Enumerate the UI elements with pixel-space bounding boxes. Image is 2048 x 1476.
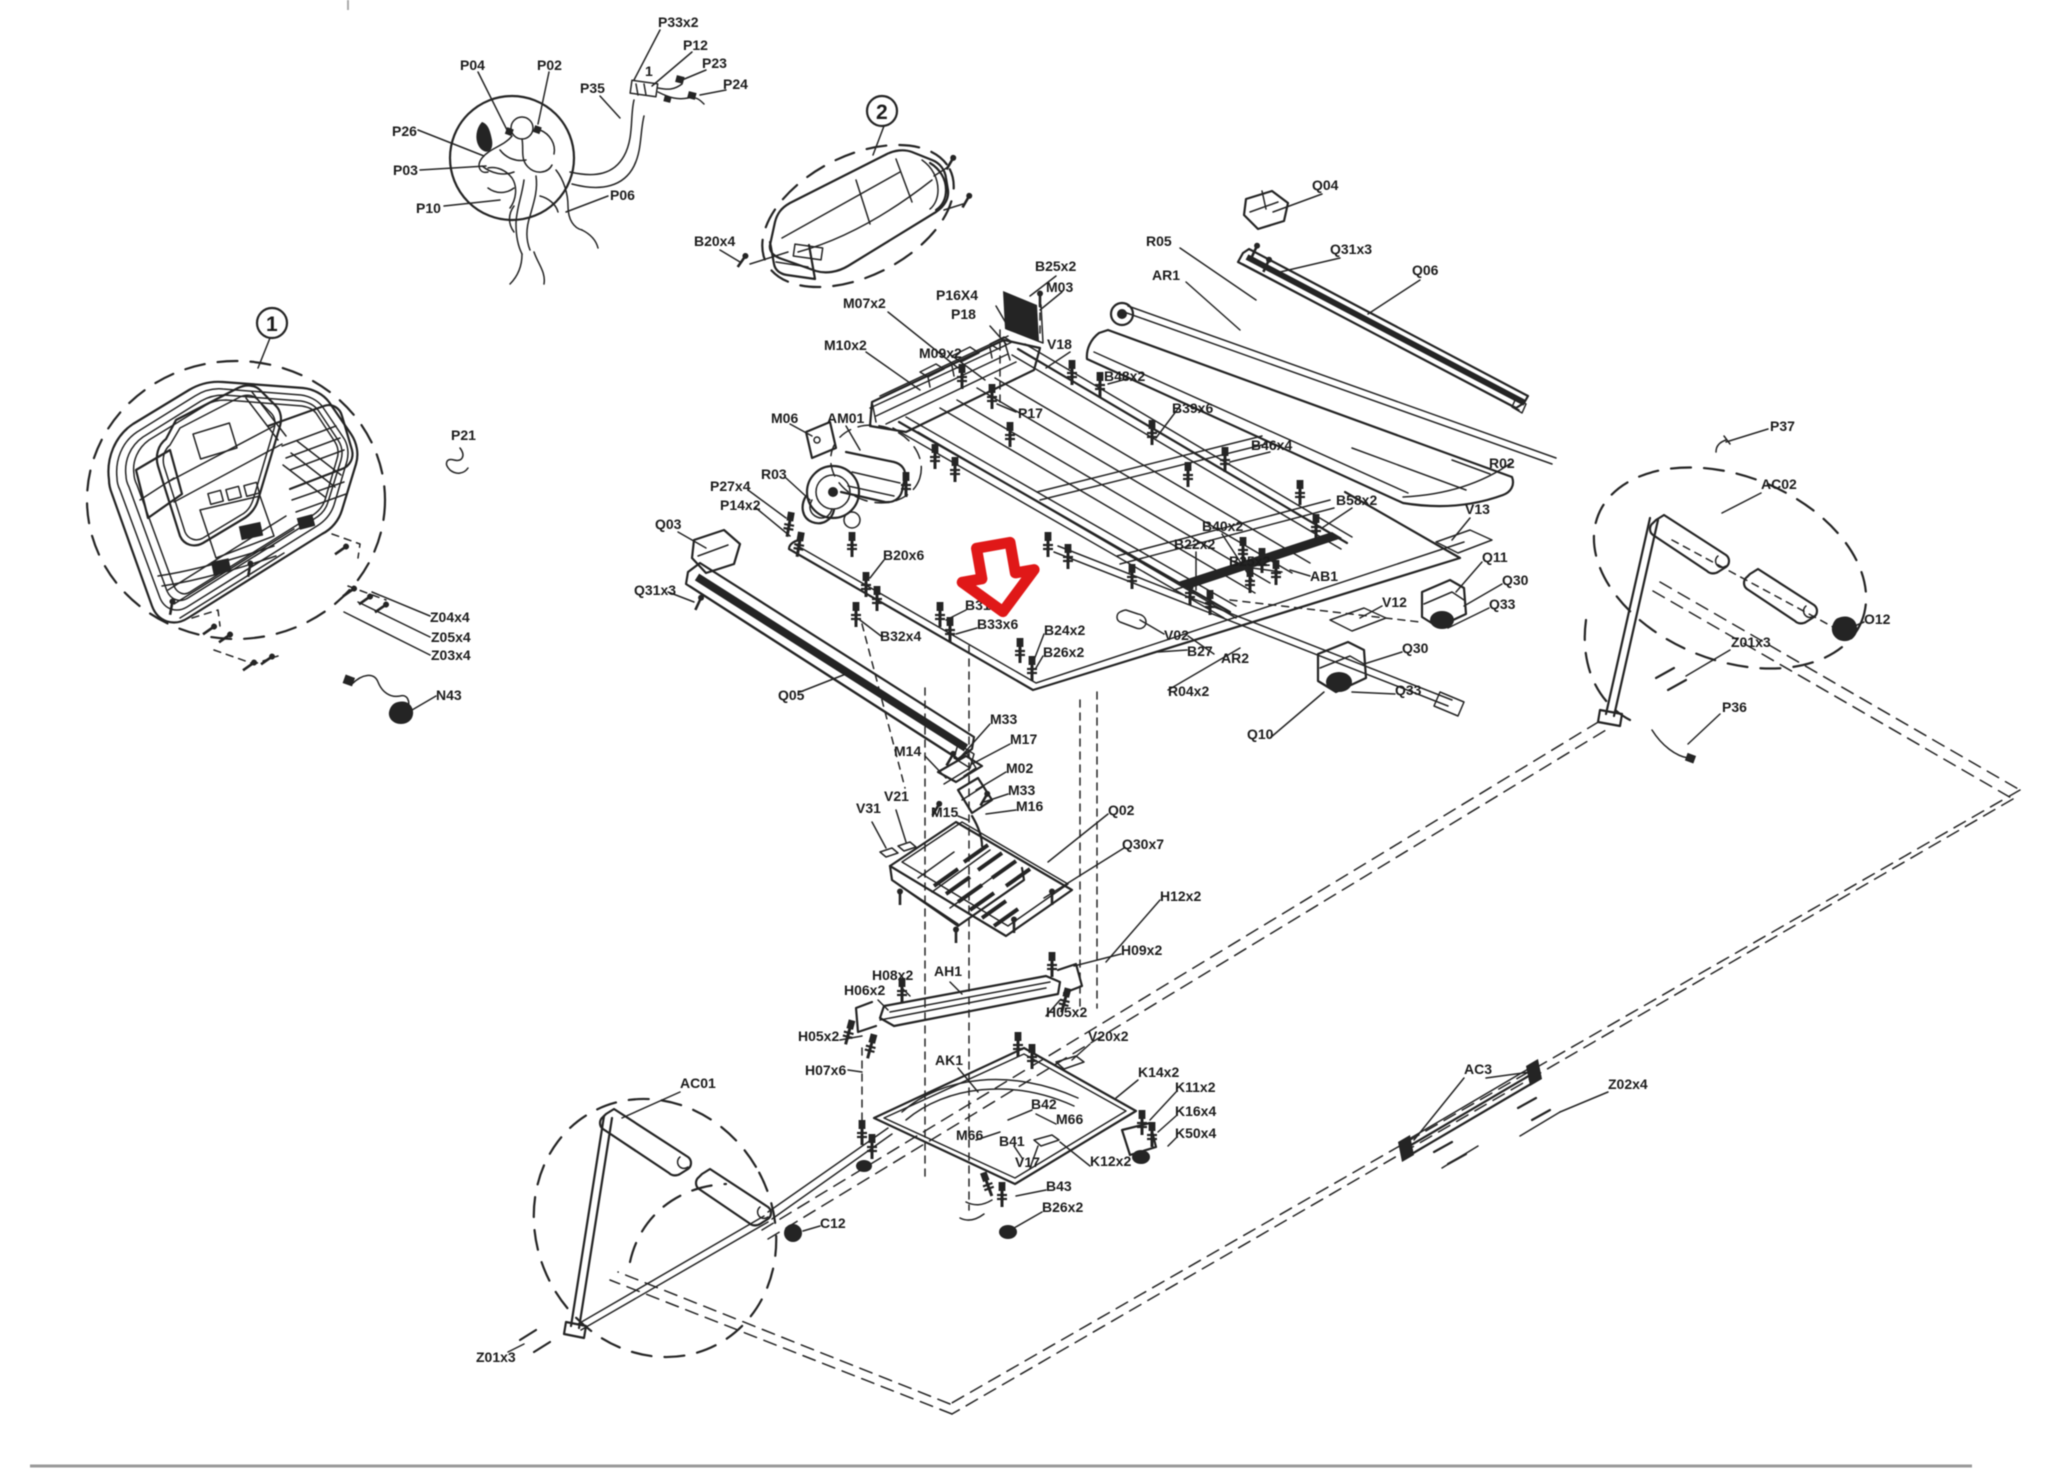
svg-text:Q05: Q05 [778,687,805,703]
svg-text:V13: V13 [1465,501,1490,517]
svg-text:P10: P10 [416,200,441,216]
svg-text:2: 2 [876,101,888,124]
svg-text:M06: M06 [771,410,798,426]
svg-text:B46x4: B46x4 [1251,437,1292,453]
svg-text:V02: V02 [1164,627,1189,643]
svg-text:M10x2: M10x2 [824,337,867,353]
svg-text:B41: B41 [999,1133,1025,1149]
svg-text:AM01: AM01 [827,410,865,426]
svg-text:N43: N43 [436,687,462,703]
svg-text:Q31x3: Q31x3 [634,582,676,598]
svg-text:Z04x4: Z04x4 [430,609,470,625]
svg-text:P03: P03 [393,162,418,178]
svg-text:M07x2: M07x2 [843,295,886,311]
svg-text:B32x4: B32x4 [880,628,921,644]
svg-text:B39x6: B39x6 [1172,400,1213,416]
svg-text:B26x2: B26x2 [1043,644,1084,660]
svg-text:M03: M03 [1046,279,1073,295]
svg-text:P02: P02 [537,57,562,73]
svg-text:C12: C12 [820,1215,846,1231]
svg-text:1: 1 [266,313,278,336]
svg-text:Z01x3: Z01x3 [1731,634,1771,650]
svg-text:P26: P26 [392,123,417,139]
svg-text:B20x4: B20x4 [694,233,735,249]
svg-text:P06: P06 [610,187,635,203]
svg-text:P36: P36 [1722,699,1747,715]
svg-text:H05x2: H05x2 [798,1028,839,1044]
svg-text:K11x2: K11x2 [1175,1079,1216,1095]
svg-text:P18: P18 [951,306,976,322]
svg-text:P21: P21 [451,427,476,443]
svg-text:M33: M33 [1008,782,1035,798]
svg-text:H09x2: H09x2 [1121,942,1162,958]
svg-text:P14x2: P14x2 [720,497,761,513]
svg-text:M66: M66 [1056,1111,1083,1127]
svg-text:Q30: Q30 [1502,572,1529,588]
svg-text:B40x2: B40x2 [1202,518,1243,534]
svg-text:H07x6: H07x6 [805,1062,846,1078]
svg-text:B42: B42 [1031,1096,1057,1112]
svg-text:Z05x4: Z05x4 [431,629,471,645]
svg-text:H06x2: H06x2 [844,982,885,998]
svg-text:P17: P17 [1018,405,1043,421]
svg-text:P24: P24 [723,76,748,92]
svg-text:P33x2: P33x2 [658,14,699,30]
svg-text:M17: M17 [1010,731,1037,747]
svg-text:B25x2: B25x2 [1229,553,1270,569]
svg-text:P37: P37 [1770,418,1795,434]
svg-text:R04x2: R04x2 [1168,683,1209,699]
svg-text:AC01: AC01 [680,1075,716,1091]
svg-text:M16: M16 [1016,798,1043,814]
svg-text:R02: R02 [1489,455,1515,471]
svg-text:V21: V21 [884,788,909,804]
svg-text:R03: R03 [761,466,787,482]
svg-text:Q02: Q02 [1108,802,1135,818]
svg-text:O12: O12 [1864,611,1891,627]
svg-text:P35: P35 [580,80,605,96]
svg-text:B26x2: B26x2 [1042,1199,1083,1215]
svg-text:K16x4: K16x4 [1175,1103,1216,1119]
svg-text:K14x2: K14x2 [1138,1064,1179,1080]
svg-text:H05x2: H05x2 [1046,1004,1087,1020]
svg-text:B24x2: B24x2 [1044,622,1085,638]
svg-text:P16X4: P16X4 [936,287,978,303]
svg-text:Q04: Q04 [1312,177,1339,193]
svg-text:AK1: AK1 [935,1052,963,1068]
svg-text:Q30x7: Q30x7 [1122,836,1164,852]
svg-text:P04: P04 [460,57,485,73]
svg-text:H12x2: H12x2 [1160,888,1201,904]
svg-text:M14: M14 [894,743,921,759]
svg-text:AC02: AC02 [1761,476,1797,492]
svg-text:M15: M15 [931,804,958,820]
svg-text:1: 1 [645,63,653,79]
svg-text:Z03x4: Z03x4 [431,647,471,663]
svg-text:Q30: Q30 [1402,640,1429,656]
svg-text:B22x2: B22x2 [1174,536,1215,552]
svg-text:Q10: Q10 [1247,726,1274,742]
svg-text:V18: V18 [1047,336,1072,352]
svg-text:M02: M02 [1006,760,1033,776]
svg-text:M09x2: M09x2 [919,345,962,361]
svg-text:Q03: Q03 [655,516,682,532]
svg-text:AC3: AC3 [1464,1061,1492,1077]
svg-text:AH1: AH1 [934,963,962,979]
svg-text:M66: M66 [956,1127,983,1143]
svg-text:R05: R05 [1146,233,1172,249]
svg-text:B43: B43 [1046,1178,1072,1194]
svg-text:Q11: Q11 [1482,549,1508,565]
svg-text:Q06: Q06 [1412,262,1439,278]
svg-text:V17: V17 [1015,1154,1040,1170]
svg-text:B48x2: B48x2 [1104,368,1145,384]
svg-text:Q33: Q33 [1395,682,1422,698]
svg-text:K50x4: K50x4 [1175,1125,1216,1141]
svg-text:P12: P12 [683,37,708,53]
svg-text:B25x2: B25x2 [1035,258,1076,274]
svg-text:V12: V12 [1382,594,1407,610]
svg-text:B20x6: B20x6 [883,547,924,563]
svg-text:V31: V31 [856,800,881,816]
svg-text:M33: M33 [990,711,1017,727]
svg-text:P23: P23 [702,55,727,71]
svg-text:AR1: AR1 [1152,267,1180,283]
svg-text:B33x6: B33x6 [977,616,1018,632]
svg-text:H08x2: H08x2 [872,967,913,983]
svg-text:K12x2: K12x2 [1090,1153,1131,1169]
svg-text:AR2: AR2 [1221,650,1249,666]
svg-text:P27x4: P27x4 [710,478,751,494]
svg-text:Q33: Q33 [1489,596,1516,612]
svg-text:AB1: AB1 [1310,568,1338,584]
svg-text:Z01x3: Z01x3 [476,1349,516,1365]
svg-text:Q31x3: Q31x3 [1330,241,1372,257]
svg-text:Z02x4: Z02x4 [1608,1076,1648,1092]
